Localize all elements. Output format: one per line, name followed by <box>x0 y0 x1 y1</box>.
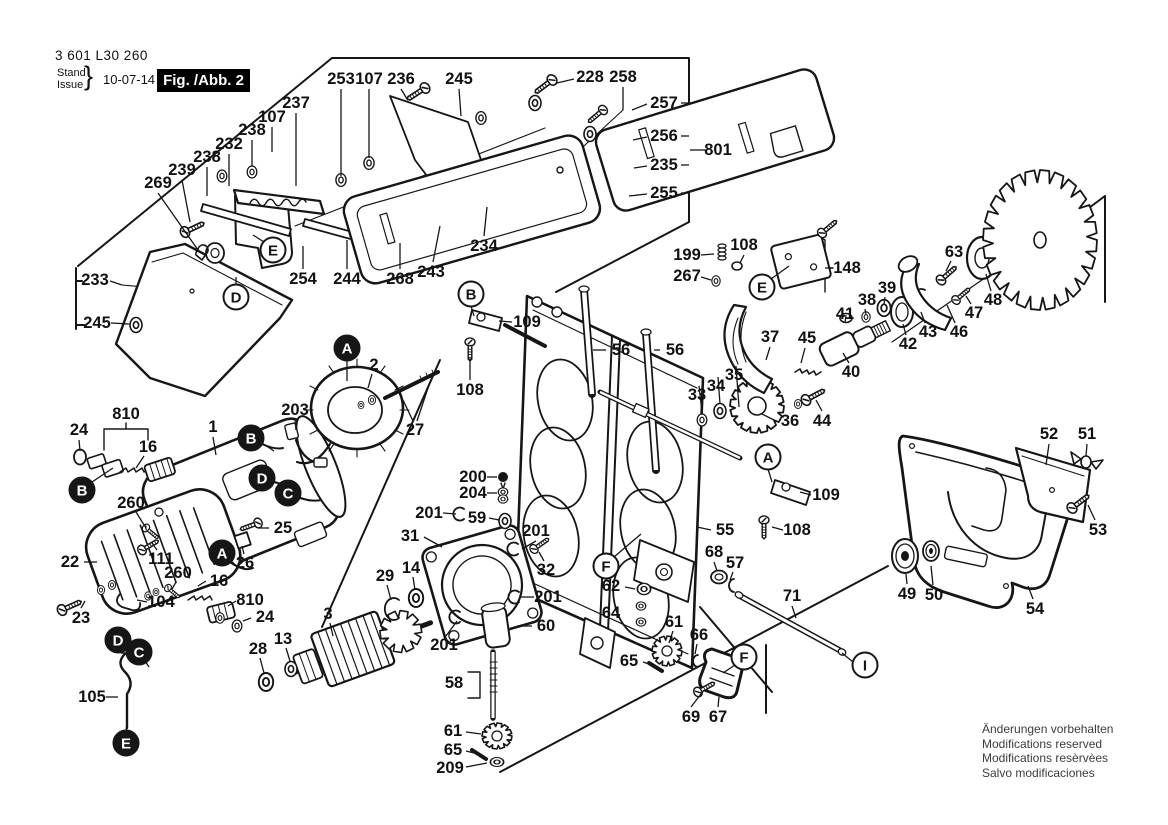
leader-line <box>1086 444 1087 456</box>
leader-line <box>906 574 907 584</box>
part-callout: 62 <box>602 577 620 595</box>
part-callout: 49 <box>898 585 916 603</box>
view-marker-letter: B <box>246 431 257 448</box>
part-callout: 260 <box>117 494 145 512</box>
part-callout: 36 <box>781 412 799 430</box>
part-callout: 50 <box>925 586 943 604</box>
part-callout: 2 <box>369 356 378 374</box>
part-callout: 245 <box>83 314 111 332</box>
part-callout: 67 <box>709 708 727 726</box>
part-callout: 236 <box>387 70 415 88</box>
leader-line <box>701 277 711 280</box>
part-callout: 801 <box>704 141 732 159</box>
part-callout: 52 <box>1040 425 1058 443</box>
part-callout: 14 <box>402 559 421 577</box>
part-callout: 68 <box>705 543 723 561</box>
part-callout: 44 <box>813 412 832 430</box>
part-callout: 237 <box>282 94 310 112</box>
view-marker-letter: B <box>77 483 88 500</box>
view-marker-letter: B <box>466 287 477 304</box>
part-callout: 63 <box>945 243 963 261</box>
part-callout: 34 <box>707 377 726 395</box>
part-callout: 109 <box>513 313 541 331</box>
leader-line <box>768 469 772 482</box>
part-callout: 22 <box>61 553 79 571</box>
part-callout: 108 <box>730 236 758 254</box>
leader-line <box>772 527 783 530</box>
view-marker-letter: E <box>757 280 767 297</box>
part-callout: 107 <box>355 70 383 88</box>
leader-line <box>766 347 770 360</box>
part-callout: 64 <box>602 604 621 622</box>
part-callout: 239 <box>168 161 196 179</box>
leader-line <box>424 537 442 547</box>
leader-line <box>632 104 647 110</box>
part-callout: 60 <box>537 617 555 635</box>
part-callout: 45 <box>798 329 816 347</box>
leader-line <box>1088 505 1095 520</box>
part-callout: 209 <box>436 759 464 777</box>
view-marker-letter: I <box>863 658 867 675</box>
leader-line <box>182 180 190 222</box>
part-callout: 148 <box>833 259 861 277</box>
leader-line <box>557 79 574 83</box>
part-callout: 201 <box>522 522 550 540</box>
carbon-brush-set-top <box>74 450 176 482</box>
part-callout: 47 <box>965 304 983 322</box>
part-callout: 16 <box>210 572 228 590</box>
leader-line <box>110 281 122 285</box>
part-callout: 56 <box>612 341 630 359</box>
part-callout: 233 <box>81 271 109 289</box>
part-callout: 109 <box>812 486 840 504</box>
part-callout: 35 <box>725 366 743 384</box>
leader-line <box>966 296 971 304</box>
part-callout: 204 <box>459 484 487 502</box>
part-callout: 201 <box>415 504 443 522</box>
part-callout: 54 <box>1026 600 1045 618</box>
part-callout: 253 <box>327 70 355 88</box>
part-callout: 23 <box>72 609 90 627</box>
part-callout: 43 <box>919 323 937 341</box>
view-marker-letter: C <box>134 645 145 662</box>
leader-line <box>459 89 461 116</box>
part-callout: 66 <box>690 626 708 644</box>
part-callout: 267 <box>673 267 701 285</box>
part-callout: 16 <box>139 438 157 456</box>
view-marker-letter: E <box>121 736 131 753</box>
part-callout: 201 <box>534 588 562 606</box>
leader-line <box>387 585 391 600</box>
part-callout: 55 <box>716 521 734 539</box>
parts-diagram-page: 3 601 L30 260 Stand Issue } 10-07-14 Fig… <box>0 0 1168 825</box>
part-callout: 108 <box>783 521 811 539</box>
leader-line <box>801 348 805 363</box>
part-callout: 3 <box>323 605 332 623</box>
leader-line <box>842 653 853 662</box>
part-callout: 32 <box>537 561 555 579</box>
part-callout: 33 <box>688 386 706 404</box>
view-marker-letter: C <box>283 486 294 503</box>
part-callout: 46 <box>950 323 968 341</box>
leader-line <box>714 562 717 571</box>
leader-line <box>243 618 251 621</box>
part-callout: 260 <box>164 564 192 582</box>
view-marker-letter: E <box>268 243 278 260</box>
part-callout: 26 <box>236 554 254 572</box>
leader-line <box>417 382 430 421</box>
part-callout: 108 <box>456 381 484 399</box>
leader-line <box>816 400 822 411</box>
part-callout: 104 <box>147 593 175 611</box>
part-callout: 268 <box>386 270 414 288</box>
part-callout: 59 <box>468 509 486 527</box>
view-marker-letter: A <box>763 450 774 467</box>
part-callout: 810 <box>112 405 140 423</box>
part-callout: 31 <box>401 527 419 545</box>
exploded-parts-diagram: 2531072362452282582371072382322382392692… <box>0 0 1168 825</box>
leader-line <box>136 456 144 468</box>
view-marker-letter: A <box>342 341 353 358</box>
leader-line <box>260 658 264 673</box>
part-callout: 39 <box>878 279 896 297</box>
part-callout: 245 <box>445 70 473 88</box>
part-callout: 41 <box>836 305 854 323</box>
part-callout: 61 <box>444 722 462 740</box>
part-callout: 61 <box>665 613 683 631</box>
leader-line <box>466 732 481 734</box>
part-callout: 25 <box>274 519 292 537</box>
part-callout: 65 <box>444 741 462 759</box>
view-marker-letter: A <box>217 546 228 563</box>
part-callout: 24 <box>256 608 275 626</box>
part-callout: 235 <box>650 156 678 174</box>
view-marker-letter: D <box>113 633 124 650</box>
leader-line <box>740 255 744 263</box>
part-callout: 258 <box>609 68 637 86</box>
part-callout: 199 <box>673 246 701 264</box>
saw-blade-48-group <box>967 170 1097 310</box>
leader-line <box>695 644 697 654</box>
part-callout: 28 <box>249 640 267 658</box>
part-callout: 254 <box>289 270 317 288</box>
part-callout: 57 <box>726 554 744 572</box>
part-callout: 38 <box>858 291 876 309</box>
part-callout: 65 <box>620 652 638 670</box>
part-callout: 1 <box>208 418 217 436</box>
part-callout: 105 <box>78 688 106 706</box>
part-callout: 42 <box>899 335 917 353</box>
leader-line <box>158 193 198 250</box>
leader-line <box>489 518 499 520</box>
part-callout: 24 <box>70 421 89 439</box>
leader-line <box>701 254 714 255</box>
part-callout: 53 <box>1089 521 1107 539</box>
part-callout: 269 <box>144 174 172 192</box>
part-callout: 51 <box>1078 425 1096 443</box>
spindle-58-61-209 <box>472 652 504 767</box>
view-marker-letter: D <box>231 290 242 307</box>
leader-line <box>401 89 407 99</box>
part-callout: 238 <box>193 148 221 166</box>
part-callout: 257 <box>650 94 678 112</box>
view-marker-letter: F <box>739 650 748 667</box>
part-callout: 244 <box>333 270 361 288</box>
view-marker-letter: F <box>601 559 610 576</box>
part-callout: 228 <box>576 68 604 86</box>
part-callout: 56 <box>666 341 684 359</box>
part-callout: 71 <box>783 587 801 605</box>
leader-line <box>466 763 487 767</box>
leader-line <box>413 577 415 590</box>
part-callout: 203 <box>281 401 309 419</box>
leader-line <box>697 527 711 530</box>
leader-line <box>286 648 290 661</box>
part-callout: 810 <box>236 591 264 609</box>
part-callout: 201 <box>430 636 458 654</box>
part-callout: 69 <box>682 708 700 726</box>
part-callout: 58 <box>445 674 463 692</box>
part-callout: 40 <box>842 363 860 381</box>
part-callout: 37 <box>761 328 779 346</box>
part-callout: 255 <box>650 184 678 202</box>
part-callout: 234 <box>470 237 498 255</box>
part-callout: 29 <box>376 567 394 585</box>
part-callout: 243 <box>417 263 445 281</box>
part-callout: 256 <box>650 127 678 145</box>
leader-line <box>718 697 719 707</box>
view-marker-letter: D <box>257 471 268 488</box>
insert-plate-234 <box>336 81 604 287</box>
part-callout: 27 <box>406 421 424 439</box>
part-callout: 48 <box>984 291 1002 309</box>
part-callout: 13 <box>274 630 292 648</box>
